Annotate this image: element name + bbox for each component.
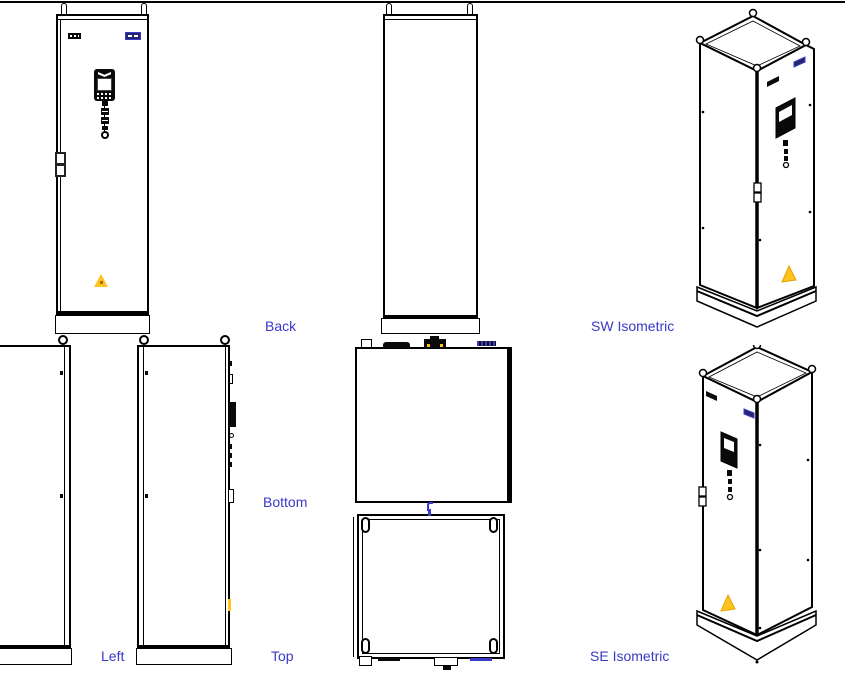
door-edge-line [143, 347, 144, 645]
viewport-bottom[interactable] [340, 330, 540, 510]
terminal-strip [477, 341, 496, 346]
se-isometric-drawing [660, 345, 845, 684]
hinge-dot [60, 494, 63, 498]
door-latch-icon [55, 152, 66, 177]
lifting-eye-icon [361, 638, 370, 654]
hinge-dot [60, 371, 63, 375]
lifting-eye-icon [489, 638, 498, 654]
viewport-left[interactable] [130, 330, 250, 684]
control-ring [101, 131, 109, 139]
sw-isometric-drawing [660, 0, 845, 340]
lifting-eye-icon [58, 335, 68, 345]
hinge-dot [145, 371, 148, 375]
view-label-left: Left [101, 649, 124, 664]
center-fitting-cap [430, 336, 439, 340]
hmi-side-profile [228, 402, 236, 427]
center-mark-icon [428, 509, 431, 516]
vent-grille-icon [68, 33, 81, 39]
vent-bump [383, 342, 410, 348]
cabinet-left-face [137, 345, 230, 648]
view-label-sw-isometric: SW Isometric [591, 319, 674, 334]
control-knob [102, 126, 108, 130]
control-side [229, 462, 232, 467]
viewport-top[interactable] [340, 505, 540, 680]
view-label-back: Back [265, 319, 296, 334]
cabinet-front-face [56, 14, 149, 315]
cabinet-side-face [0, 345, 71, 648]
viewport-side-partial[interactable] [0, 330, 86, 684]
top-rail-line [385, 19, 476, 20]
view-label-bottom: Bottom [263, 495, 307, 510]
lifting-eye-icon [489, 517, 498, 533]
drawing-sheet: Back [0, 0, 845, 684]
view-label-top: Top [271, 649, 294, 664]
iso-right-face [757, 372, 812, 635]
plinth-left [136, 648, 232, 665]
control-knob [102, 101, 108, 106]
front-protrusion [228, 489, 234, 503]
front-edge-line [225, 347, 226, 645]
lifting-eye-icon [220, 335, 230, 345]
center-fitting [434, 657, 458, 666]
front-dash [378, 658, 400, 661]
lifting-eye-icon [139, 335, 149, 345]
top-rail-line [58, 19, 147, 20]
viewport-back[interactable] [330, 0, 560, 340]
top-outer-edge [353, 517, 354, 657]
viewport-se-isometric[interactable] [660, 345, 845, 684]
cabinet-back-face [383, 14, 478, 318]
door-latch-icon [699, 487, 706, 506]
control-side [229, 453, 232, 458]
iso-left-face [700, 43, 757, 308]
front-protrusion [229, 361, 232, 366]
nameplate-icon [125, 32, 141, 40]
view-label-se-isometric: SE Isometric [590, 649, 669, 664]
gland-plate [361, 339, 372, 348]
viewport-front[interactable] [0, 0, 250, 340]
door-latch-icon [754, 183, 761, 202]
control-button [101, 117, 109, 124]
iso-front-face [757, 45, 814, 308]
gland-plate [359, 656, 372, 666]
door-edge-line [64, 347, 65, 645]
top-outline [357, 514, 505, 659]
control-side [229, 444, 232, 449]
control-button [101, 108, 109, 115]
plinth-side [0, 648, 72, 665]
front-protrusion [229, 374, 233, 384]
control-ring [229, 433, 234, 438]
hmi-display-icon [94, 69, 115, 101]
center-fitting [424, 339, 446, 348]
viewport-sw-isometric[interactable] [660, 0, 845, 340]
warning-label-edge [228, 599, 231, 611]
terminal-strip [470, 658, 492, 661]
top-outline-inner [362, 519, 500, 654]
center-fitting-foot [443, 666, 451, 670]
bottom-outline [355, 347, 512, 503]
hinge-dot [145, 494, 148, 498]
lifting-eye-icon [361, 517, 370, 533]
